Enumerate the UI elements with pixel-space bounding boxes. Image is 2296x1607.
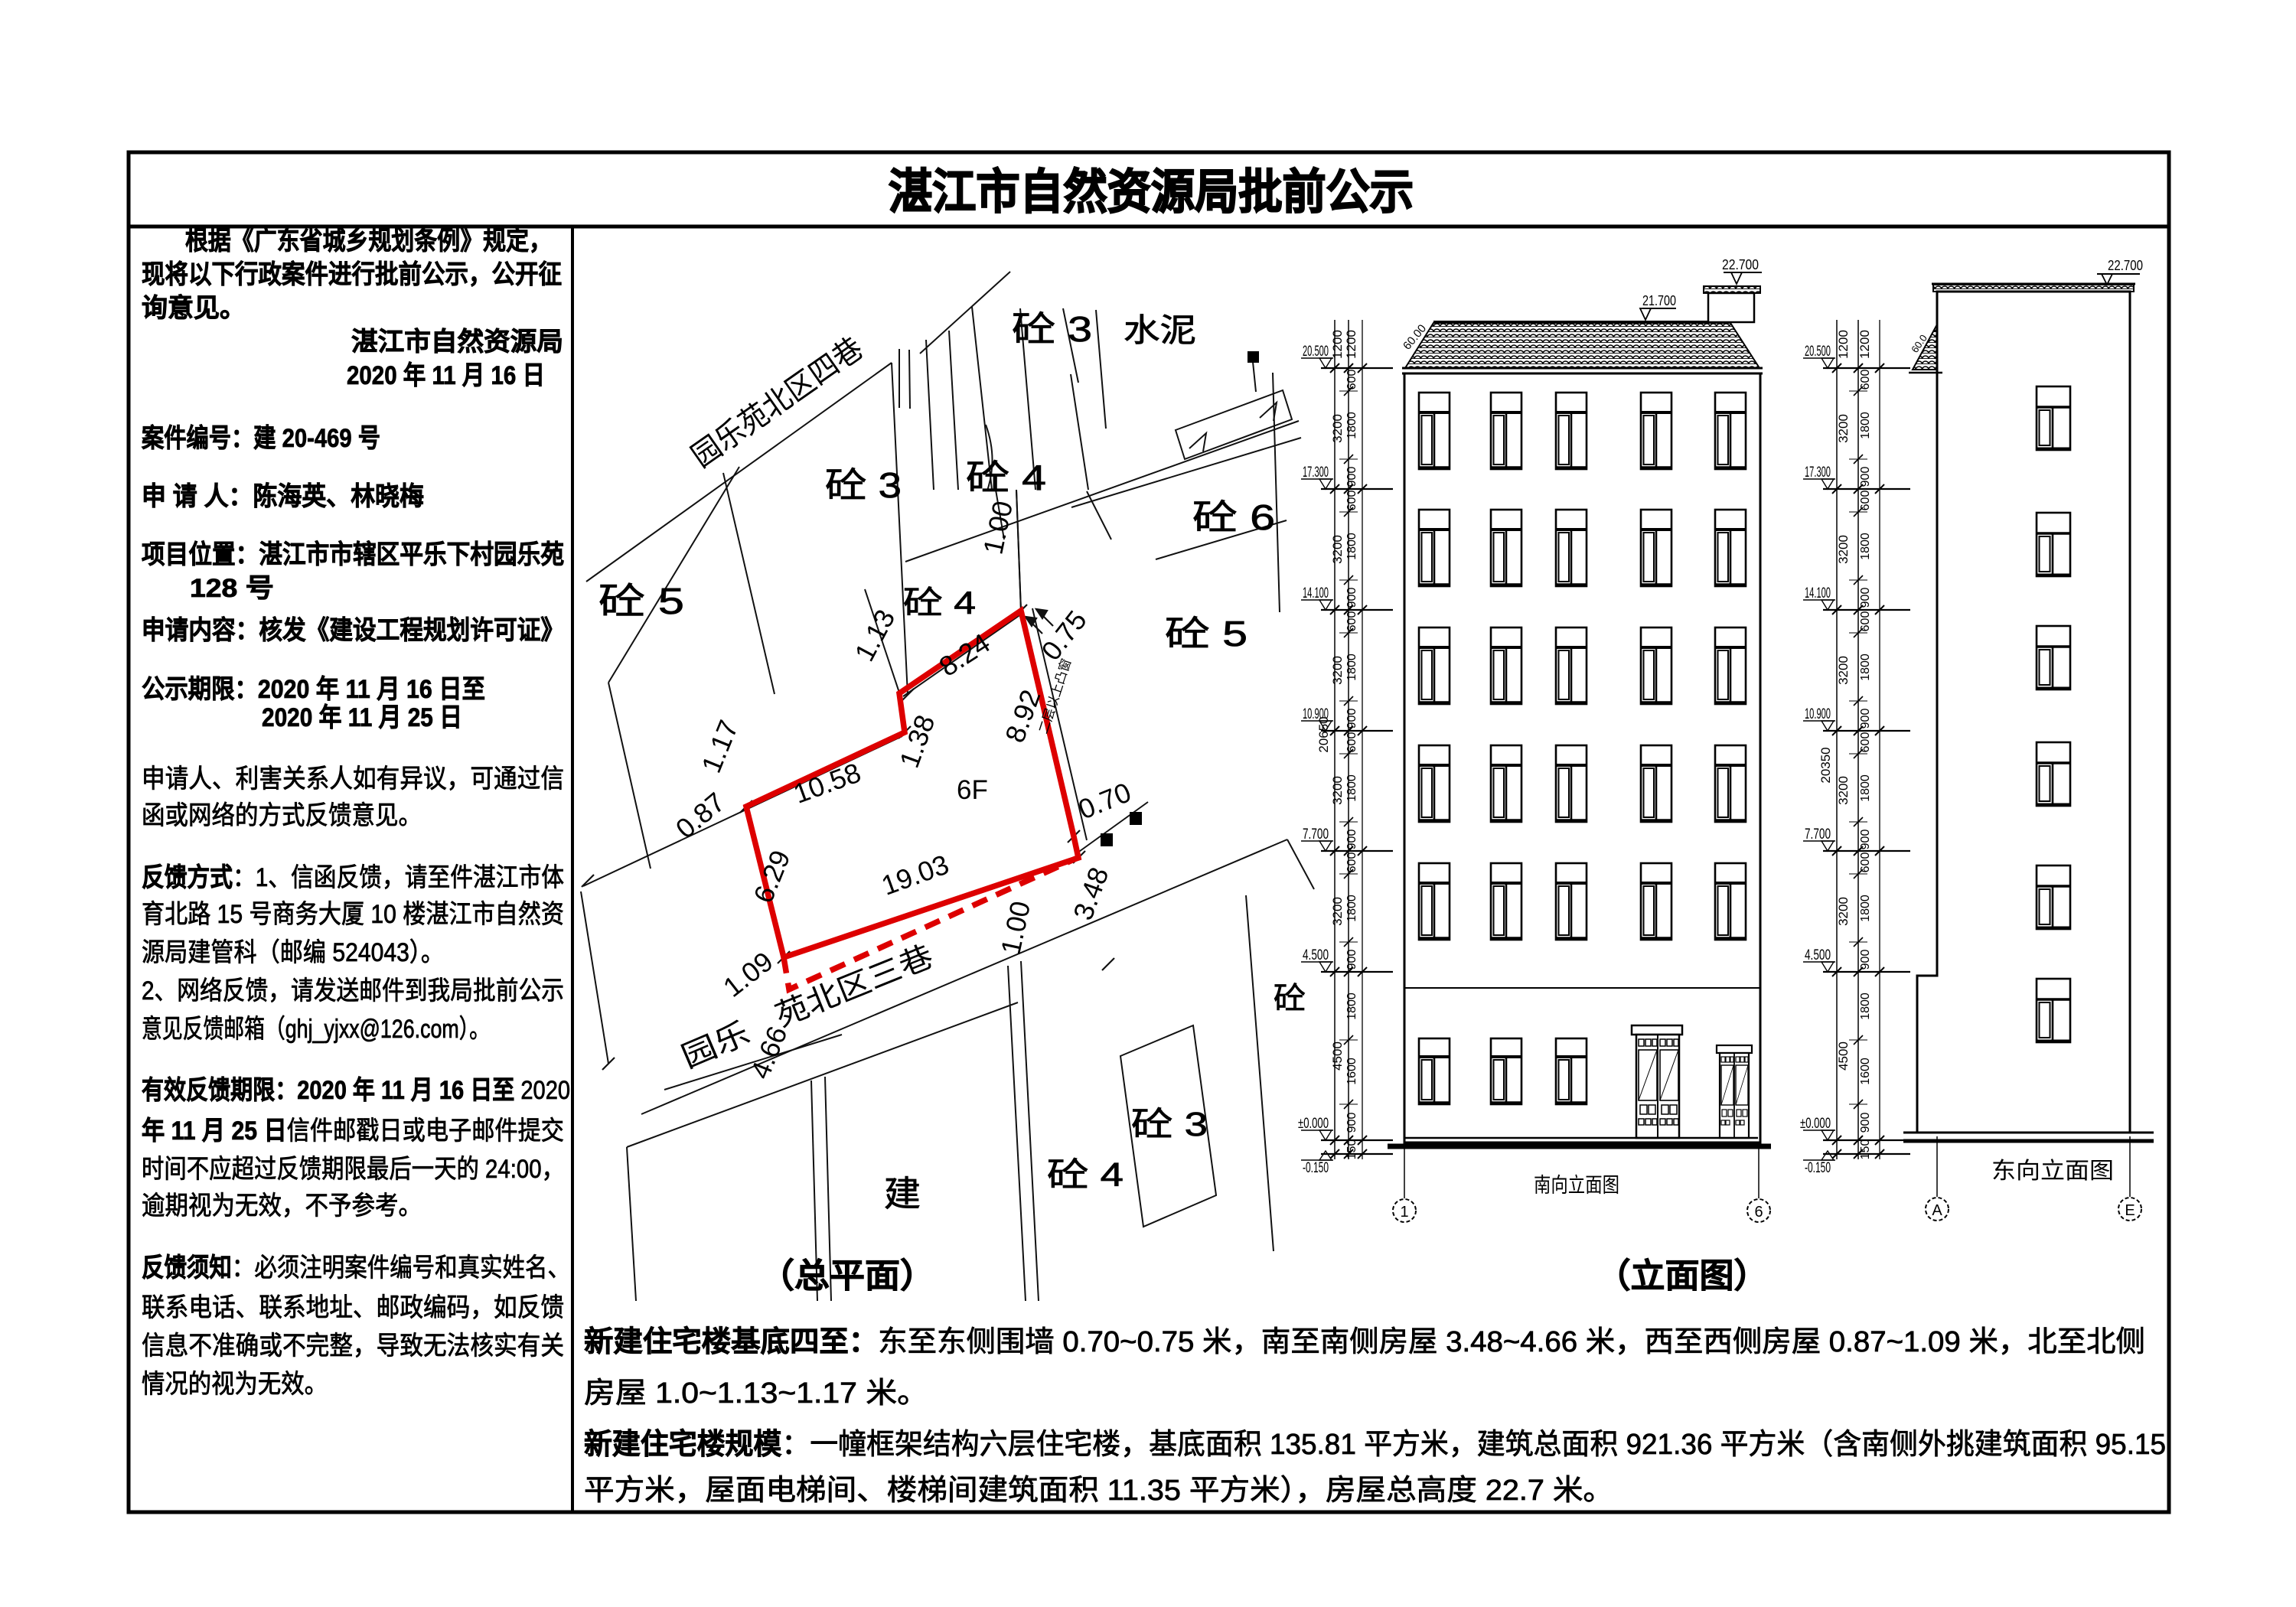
svg-text:砼 4: 砼 4 <box>1047 1156 1124 1194</box>
svg-text:600: 600 <box>1345 732 1358 753</box>
svg-text:6: 6 <box>1754 1204 1763 1221</box>
svg-text:1600: 1600 <box>1859 1058 1872 1085</box>
svg-text:600: 600 <box>1859 370 1872 390</box>
svg-text:1800: 1800 <box>1345 533 1358 560</box>
svg-text:E: E <box>2125 1202 2135 1219</box>
svg-text:砼 3: 砼 3 <box>1012 309 1092 349</box>
svg-text:2020 年 11 月 25 日: 2020 年 11 月 25 日 <box>262 703 462 732</box>
svg-text:1800: 1800 <box>1859 654 1872 681</box>
svg-text:砼 5: 砼 5 <box>598 582 684 622</box>
svg-text:情况的视为无效。: 情况的视为无效。 <box>142 1370 328 1399</box>
svg-text:1800: 1800 <box>1859 895 1872 922</box>
svg-text:砼 6: 砼 6 <box>1192 497 1275 537</box>
svg-text:4.500: 4.500 <box>1805 947 1831 963</box>
svg-text:湛江市自然资源局批前公示: 湛江市自然资源局批前公示 <box>889 166 1414 219</box>
svg-text:园乐苑北区四巷: 园乐苑北区四巷 <box>686 331 869 474</box>
svg-text:1800: 1800 <box>1859 533 1872 560</box>
svg-text:3200: 3200 <box>1330 414 1345 443</box>
svg-text:砼 3: 砼 3 <box>1131 1106 1208 1143</box>
svg-text:600: 600 <box>1859 611 1872 632</box>
svg-text:600: 600 <box>1859 491 1872 511</box>
svg-text:3200: 3200 <box>1836 414 1851 443</box>
svg-text:3200: 3200 <box>1330 776 1345 805</box>
svg-text:10.900: 10.900 <box>1805 706 1831 722</box>
svg-text:4.500: 4.500 <box>1303 947 1329 963</box>
svg-text:3200: 3200 <box>1836 656 1851 685</box>
svg-text:申 请 人：陈海英、林晓梅: 申 请 人：陈海英、林晓梅 <box>142 482 424 511</box>
svg-text:1: 1 <box>1400 1204 1408 1221</box>
svg-text:建: 建 <box>884 1174 921 1214</box>
svg-text:1.09: 1.09 <box>717 945 778 1002</box>
svg-text:3200: 3200 <box>1836 776 1851 805</box>
svg-text:20350: 20350 <box>1818 747 1833 783</box>
svg-text:150: 150 <box>1345 1139 1358 1160</box>
svg-text:源局建管科（邮编 524043）。: 源局建管科（邮编 524043）。 <box>142 938 444 967</box>
svg-text:±0.000: ±0.000 <box>1298 1116 1329 1132</box>
svg-text:600: 600 <box>1345 370 1358 390</box>
svg-text:新建住宅楼基底四至：东至东侧围墙 0.70~0.75 米，南: 新建住宅楼基底四至：东至东侧围墙 0.70~0.75 米，南至南侧房屋 3.48… <box>584 1325 2145 1358</box>
svg-text:900: 900 <box>1859 950 1872 970</box>
svg-text:900: 900 <box>1345 950 1358 970</box>
svg-text:意见反馈邮箱（ghj_yjxx@126.com）。: 意见反馈邮箱（ghj_yjxx@126.com）。 <box>142 1015 490 1044</box>
svg-text:3200: 3200 <box>1330 656 1345 685</box>
svg-text:申请人、利害关系人如有异议，可通过信: 申请人、利害关系人如有异议，可通过信 <box>142 764 564 794</box>
svg-text:时间不应超过反馈期限最后一天的 24:00，: 时间不应超过反馈期限最后一天的 24:00， <box>142 1155 564 1184</box>
svg-text:0.87: 0.87 <box>670 786 731 844</box>
svg-text:2、网络反馈，请发送邮件到我局批前公示: 2、网络反馈，请发送邮件到我局批前公示 <box>142 976 564 1006</box>
svg-text:1.00: 1.00 <box>977 498 1019 557</box>
svg-text:4500: 4500 <box>1836 1041 1851 1071</box>
svg-text:公示期限：2020 年 11 月 16 日至: 公示期限：2020 年 11 月 16 日至 <box>142 675 485 704</box>
svg-text:联系电话、联系地址、邮政编码，如反馈: 联系电话、联系地址、邮政编码，如反馈 <box>142 1293 564 1322</box>
svg-text:600: 600 <box>1345 491 1358 511</box>
svg-text:水泥: 水泥 <box>1124 312 1196 348</box>
svg-text:A: A <box>1932 1202 1942 1219</box>
svg-text:19.03: 19.03 <box>877 849 953 901</box>
svg-text:砼 5: 砼 5 <box>1165 614 1247 654</box>
svg-text:1800: 1800 <box>1345 412 1358 439</box>
svg-text:现将以下行政案件进行批前公示，公开征: 现将以下行政案件进行批前公示，公开征 <box>142 260 562 289</box>
svg-text:砼 3: 砼 3 <box>825 465 902 505</box>
svg-text:平方米，屋面电梯间、楼梯间建筑面积 11.35 平方米），房: 平方米，屋面电梯间、楼梯间建筑面积 11.35 平方米），房屋总高度 22.7 … <box>584 1475 1613 1507</box>
svg-text:砼: 砼 <box>1274 982 1306 1015</box>
svg-text:新建住宅楼规模：一幢框架结构六层住宅楼，基底面积 135.8: 新建住宅楼规模：一幢框架结构六层住宅楼，基底面积 135.81 平方米，建筑总面… <box>584 1428 2166 1461</box>
svg-text:（立面图）: （立面图） <box>1596 1257 1769 1295</box>
svg-text:房屋 1.0~1.13~1.17 米。: 房屋 1.0~1.13~1.17 米。 <box>584 1377 928 1410</box>
svg-text:600: 600 <box>1345 611 1358 632</box>
svg-text:21.700: 21.700 <box>1642 293 1676 308</box>
svg-text:1200: 1200 <box>1330 330 1345 359</box>
svg-text:17.300: 17.300 <box>1303 464 1329 481</box>
svg-text:17.300: 17.300 <box>1805 464 1831 481</box>
svg-text:7.700: 7.700 <box>1805 826 1831 843</box>
svg-text:反馈方式：1、信函反馈，请至件湛江市体: 反馈方式：1、信函反馈，请至件湛江市体 <box>142 863 564 892</box>
svg-text:900: 900 <box>1345 709 1358 729</box>
svg-text:900: 900 <box>1859 588 1872 608</box>
svg-text:3200: 3200 <box>1330 535 1345 564</box>
svg-text:项目位置：湛江市市辖区平乐下村园乐苑: 项目位置：湛江市市辖区平乐下村园乐苑 <box>142 539 564 569</box>
svg-text:8.92: 8.92 <box>999 686 1046 747</box>
svg-text:20650: 20650 <box>1316 716 1331 752</box>
svg-text:案件编号：建 20-469 号: 案件编号：建 20-469 号 <box>142 424 380 453</box>
svg-text:询意见。: 询意见。 <box>142 294 246 323</box>
svg-text:1600: 1600 <box>1345 1058 1358 1085</box>
svg-text:3200: 3200 <box>1836 535 1851 564</box>
svg-text:1800: 1800 <box>1345 654 1358 681</box>
svg-text:22.700: 22.700 <box>1722 257 1759 272</box>
svg-text:1800: 1800 <box>1859 774 1872 802</box>
svg-text:1800: 1800 <box>1345 993 1358 1020</box>
svg-text:1800: 1800 <box>1345 895 1358 922</box>
svg-text:3.48: 3.48 <box>1067 863 1114 924</box>
svg-text:14.100: 14.100 <box>1303 585 1329 601</box>
svg-text:150: 150 <box>1859 1139 1872 1160</box>
svg-text:20.500: 20.500 <box>1303 344 1329 360</box>
svg-text:1.17: 1.17 <box>695 715 744 777</box>
svg-text:东向立面图: 东向立面图 <box>1991 1159 2114 1184</box>
svg-text:900: 900 <box>1859 1113 1872 1133</box>
svg-text:逾期视为无效，不予参考。: 逾期视为无效，不予参考。 <box>142 1191 422 1221</box>
svg-text:6F: 6F <box>957 775 988 805</box>
svg-text:有效反馈期限：2020 年 11 月 16 日至 2020: 有效反馈期限：2020 年 11 月 16 日至 2020 <box>142 1076 570 1105</box>
svg-text:（总平面）: （总平面） <box>759 1257 935 1295</box>
svg-text:-0.150: -0.150 <box>1303 1160 1329 1176</box>
svg-text:900: 900 <box>1345 588 1358 608</box>
svg-text:22.700: 22.700 <box>2108 258 2143 273</box>
svg-text:砼 4: 砼 4 <box>903 585 976 621</box>
svg-text:1800: 1800 <box>1859 412 1872 439</box>
svg-text:900: 900 <box>1345 830 1358 850</box>
svg-text:900: 900 <box>1345 467 1358 487</box>
svg-text:4500: 4500 <box>1330 1041 1345 1071</box>
svg-text:900: 900 <box>1345 1113 1358 1133</box>
svg-text:20.500: 20.500 <box>1805 344 1831 360</box>
svg-text:砼 4: 砼 4 <box>966 458 1046 497</box>
svg-text:900: 900 <box>1859 709 1872 729</box>
svg-text:1200: 1200 <box>1836 330 1851 359</box>
svg-text:900: 900 <box>1859 467 1872 487</box>
svg-text:±0.000: ±0.000 <box>1800 1116 1831 1132</box>
svg-text:600: 600 <box>1859 732 1872 753</box>
svg-text:7.700: 7.700 <box>1303 826 1329 843</box>
svg-text:1200: 1200 <box>1857 330 1872 359</box>
svg-text:1.13: 1.13 <box>848 605 901 667</box>
svg-text:128 号: 128 号 <box>190 574 274 603</box>
svg-text:反馈须知：必须注明案件编号和真实姓名、: 反馈须知：必须注明案件编号和真实姓名、 <box>142 1253 570 1283</box>
svg-text:育北路 15 号商务大厦 10 楼湛江市自然资: 育北路 15 号商务大厦 10 楼湛江市自然资 <box>142 900 564 929</box>
svg-text:1800: 1800 <box>1345 774 1358 802</box>
svg-text:14.100: 14.100 <box>1805 585 1831 601</box>
svg-text:函或网络的方式反馈意见。: 函或网络的方式反馈意见。 <box>142 801 422 830</box>
svg-text:2020 年 11 月 16 日: 2020 年 11 月 16 日 <box>347 361 545 390</box>
svg-text:根据《广东省城乡规划条例》规定，: 根据《广东省城乡规划条例》规定， <box>185 226 552 256</box>
svg-text:3200: 3200 <box>1330 897 1345 926</box>
svg-text:600: 600 <box>1345 852 1358 873</box>
svg-text:3200: 3200 <box>1836 897 1851 926</box>
svg-text:信息不准确或不完整，导致无法核实有关: 信息不准确或不完整，导致无法核实有关 <box>142 1332 564 1361</box>
svg-text:1200: 1200 <box>1344 330 1358 359</box>
svg-text:-0.150: -0.150 <box>1805 1160 1831 1176</box>
svg-text:1800: 1800 <box>1859 993 1872 1020</box>
svg-text:600: 600 <box>1859 852 1872 873</box>
svg-text:6.29: 6.29 <box>747 846 796 907</box>
svg-text:湛江市自然资源局: 湛江市自然资源局 <box>351 327 563 357</box>
svg-text:南向立面图: 南向立面图 <box>1534 1174 1619 1197</box>
svg-text:申请内容：核发《建设工程规划许可证》: 申请内容：核发《建设工程规划许可证》 <box>142 616 564 645</box>
svg-text:900: 900 <box>1859 830 1872 850</box>
svg-text:10.58: 10.58 <box>789 757 865 810</box>
svg-text:年 11 月 25 日信件邮戳日或电子邮件提交: 年 11 月 25 日信件邮戳日或电子邮件提交 <box>142 1116 564 1146</box>
